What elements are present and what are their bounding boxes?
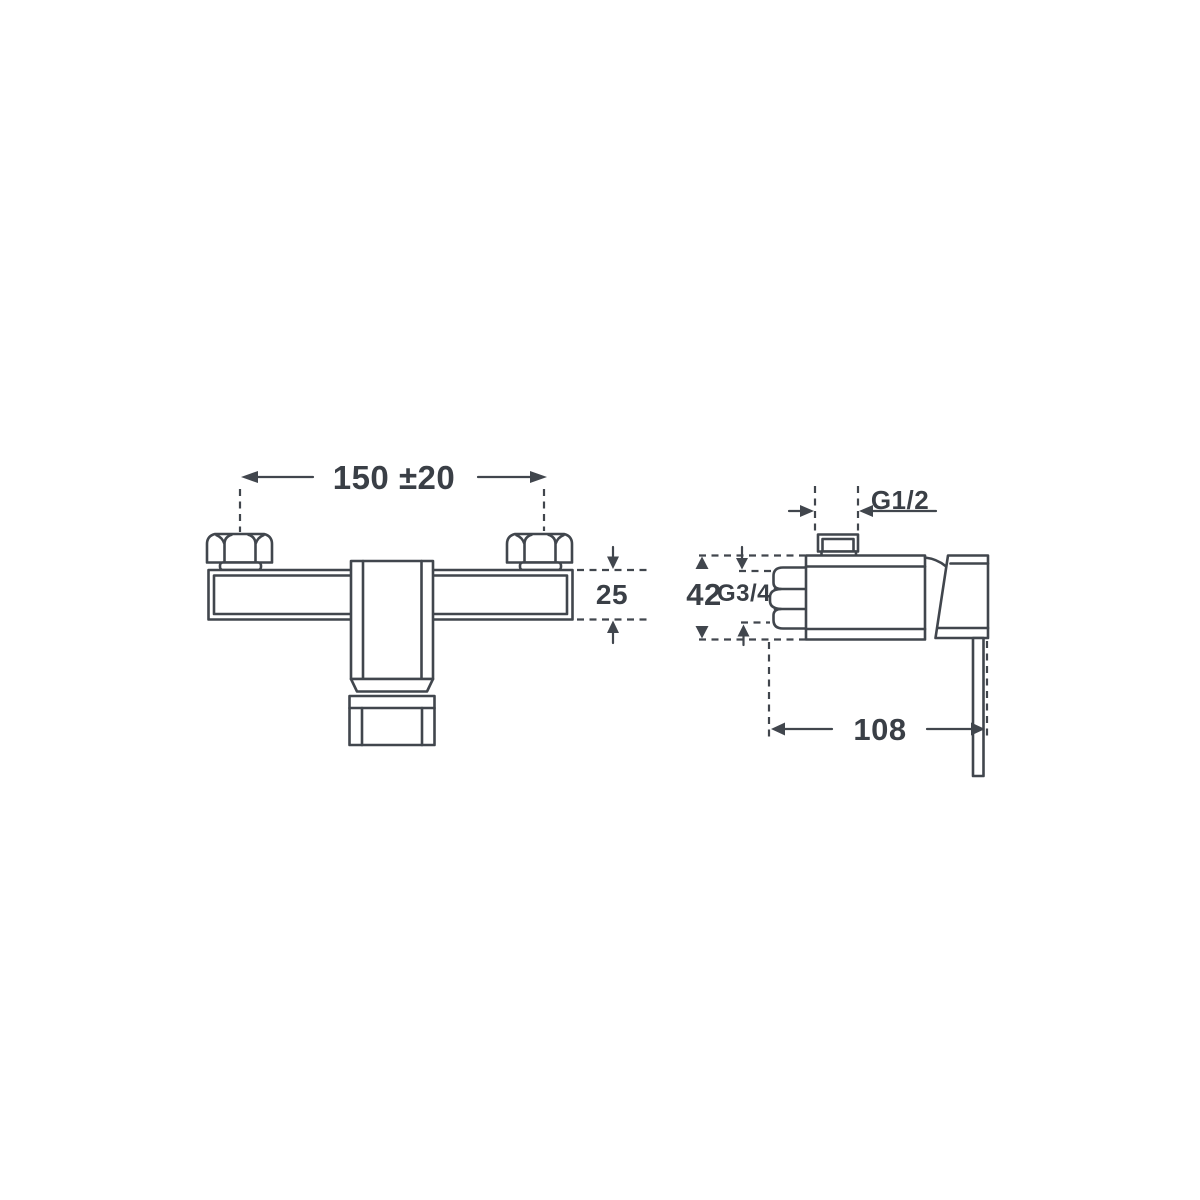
top-outlet-stub xyxy=(818,535,858,557)
handle-neck-curve xyxy=(925,558,946,567)
dimension-depth-label: 108 xyxy=(853,712,906,747)
dimension-inlet-thread-label: G3/4 xyxy=(717,580,771,607)
dimension-height-label: 25 xyxy=(596,579,628,610)
handle-grip xyxy=(936,556,989,639)
arrowhead-down-icon xyxy=(696,626,709,639)
inlet-nut-profile xyxy=(770,568,806,629)
hex-nut-right-body xyxy=(507,534,572,563)
hex-nut-right xyxy=(507,534,572,570)
arrowhead-up-icon xyxy=(607,621,619,634)
side-view: G1/2 xyxy=(686,485,988,776)
outlet-taper xyxy=(351,679,433,692)
dimension-inlet-thread: G3/4 xyxy=(717,547,772,645)
dimension-width-label: 150 ±20 xyxy=(333,459,456,496)
outlet-spout xyxy=(350,679,435,745)
dimension-top-thread: G1/2 xyxy=(789,485,936,531)
technical-drawing-svg: 150 ±20 xyxy=(0,0,1200,1200)
drawing-canvas: 150 ±20 xyxy=(0,0,1200,1200)
stub-flange xyxy=(818,535,858,552)
dimension-top-thread-label: G1/2 xyxy=(871,485,929,515)
arrowhead-left-icon xyxy=(241,471,258,483)
dimension-height: 25 xyxy=(577,547,647,643)
mixer-body xyxy=(806,556,925,640)
arrowhead-down-icon xyxy=(607,557,619,570)
arrowhead-right-icon xyxy=(530,471,547,483)
valve-body xyxy=(351,561,433,679)
hex-nut-left xyxy=(207,534,272,570)
arrowhead-down-icon xyxy=(736,558,748,570)
dimension-depth: 108 xyxy=(769,641,987,747)
hex-nut-left-body xyxy=(207,534,272,563)
handle xyxy=(925,556,988,777)
front-view: 150 ±20 xyxy=(207,459,647,745)
inlet-nut xyxy=(770,568,806,629)
arrowhead-up-icon xyxy=(738,625,750,637)
arrowhead-up-icon xyxy=(696,557,709,570)
dimension-width: 150 ±20 xyxy=(240,459,547,532)
handle-lever xyxy=(973,638,984,776)
arrowhead-right-icon xyxy=(800,505,814,517)
mixer-body-outer xyxy=(806,556,925,640)
